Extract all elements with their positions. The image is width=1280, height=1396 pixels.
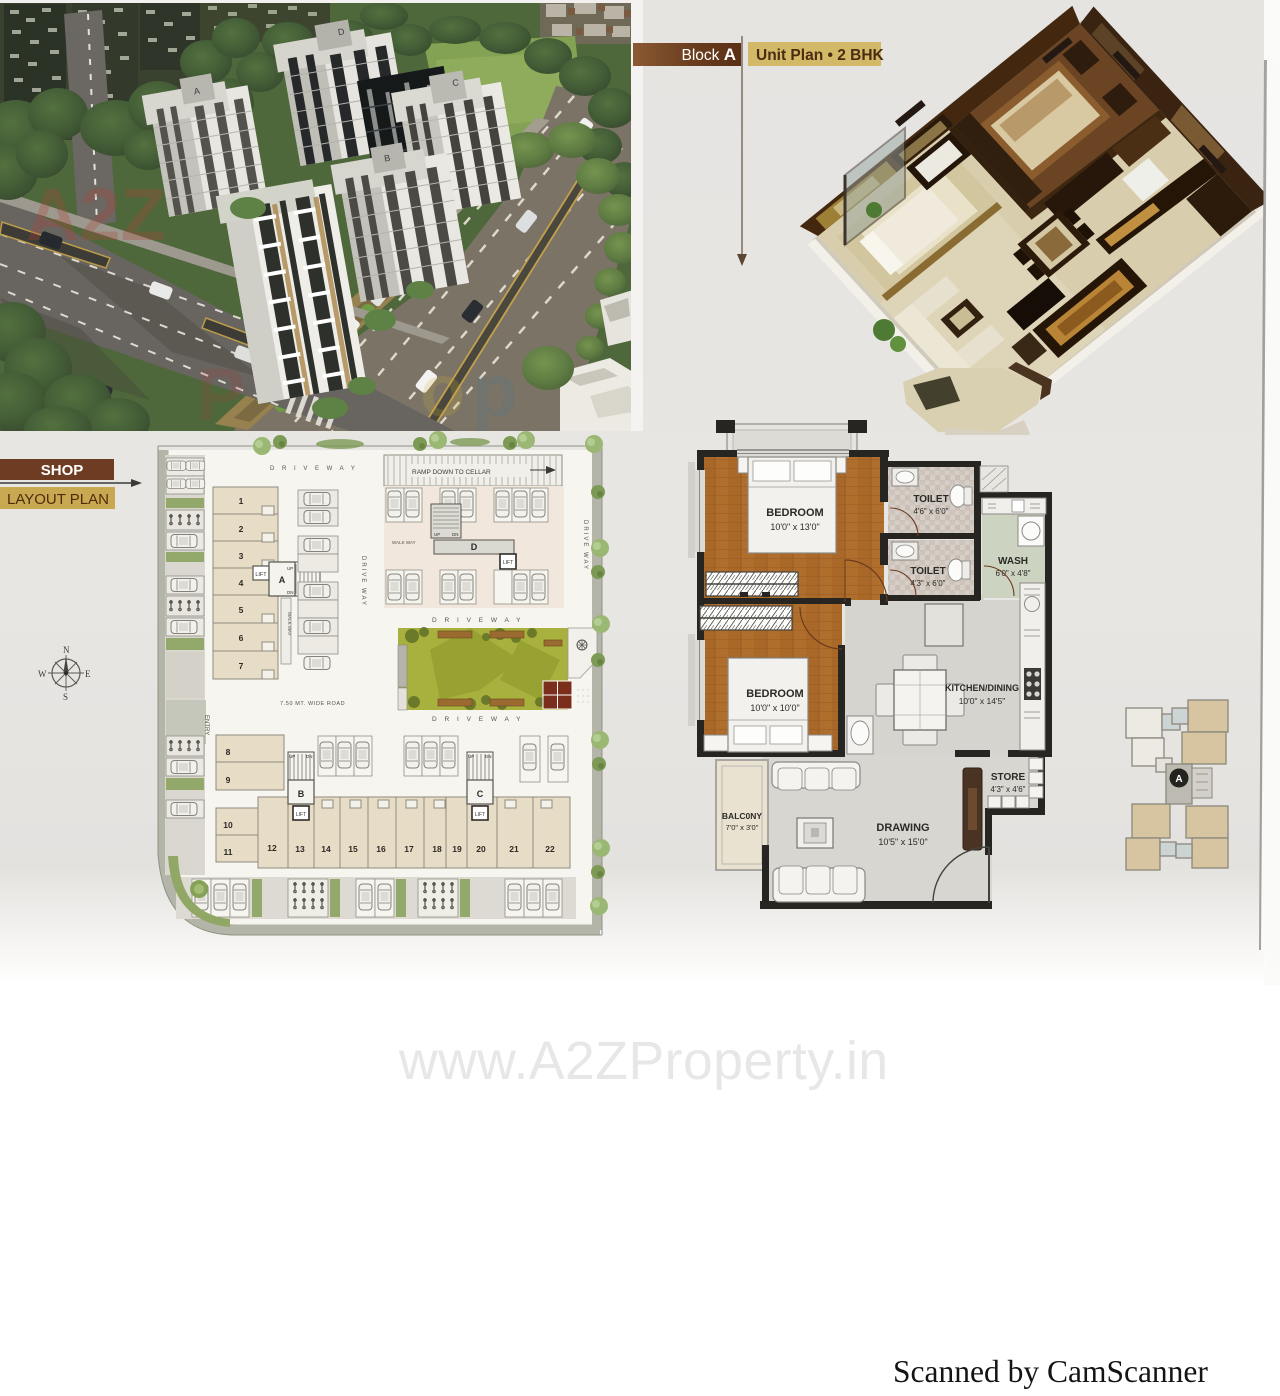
svg-text:C: C xyxy=(477,789,484,799)
svg-text:15: 15 xyxy=(348,844,358,854)
svg-text:20: 20 xyxy=(476,844,486,854)
svg-text:P: P xyxy=(196,353,245,431)
svg-text:7'0" x 3'0": 7'0" x 3'0" xyxy=(726,823,759,832)
svg-text:WALK WAY: WALK WAY xyxy=(392,540,416,545)
svg-text:17: 17 xyxy=(404,844,414,854)
svg-text:1: 1 xyxy=(239,496,244,506)
svg-text:W: W xyxy=(38,669,47,679)
svg-text:10'0" x 10'0": 10'0" x 10'0" xyxy=(750,703,799,713)
svg-text:D R I V E W A Y: D R I V E W A Y xyxy=(270,466,358,472)
svg-text:7: 7 xyxy=(239,661,244,671)
svg-text:STORE: STORE xyxy=(991,772,1026,783)
svg-text:A: A xyxy=(1175,774,1182,785)
svg-text:DN: DN xyxy=(452,532,459,537)
svg-text:DRIVE WAY: DRIVE WAY xyxy=(360,556,366,607)
svg-text:DN: DN xyxy=(485,754,492,759)
svg-text:LIFT: LIFT xyxy=(475,812,485,818)
svg-text:8: 8 xyxy=(226,747,231,757)
svg-text:WASH: WASH xyxy=(998,556,1028,567)
svg-text:10: 10 xyxy=(223,820,233,830)
svg-text:RAMP DOWN TO CELLAR: RAMP DOWN TO CELLAR xyxy=(412,469,491,476)
svg-text:16: 16 xyxy=(376,844,386,854)
svg-text:UP: UP xyxy=(289,754,295,759)
svg-text:TOILET: TOILET xyxy=(913,494,948,505)
svg-text:A: A xyxy=(279,575,286,585)
svg-text:E: E xyxy=(85,669,91,679)
svg-text:A2Z: A2Z xyxy=(26,173,166,256)
svg-text:D R I V E W A Y: D R I V E W A Y xyxy=(432,617,523,624)
svg-text:4'3" x 6'0": 4'3" x 6'0" xyxy=(911,579,946,588)
svg-text:7.50 MT. WIDE ROAD: 7.50 MT. WIDE ROAD xyxy=(280,701,345,707)
svg-text:4: 4 xyxy=(239,578,244,588)
svg-text:UP: UP xyxy=(468,754,474,759)
svg-text:12: 12 xyxy=(267,843,277,853)
svg-text:BEDROOM: BEDROOM xyxy=(766,507,823,519)
svg-text:DRAWING: DRAWING xyxy=(876,822,929,834)
svg-text:18: 18 xyxy=(432,844,442,854)
svg-text:o: o xyxy=(420,349,465,431)
svg-text:4'3" x 4'6": 4'3" x 4'6" xyxy=(991,785,1026,794)
svg-text:UP: UP xyxy=(287,566,293,571)
svg-text:3: 3 xyxy=(239,551,244,561)
svg-text:S: S xyxy=(63,692,68,702)
svg-text:21: 21 xyxy=(509,844,519,854)
svg-text:N: N xyxy=(63,645,70,655)
svg-text:10'0" x 13'0": 10'0" x 13'0" xyxy=(770,522,819,532)
svg-text:D: D xyxy=(471,542,478,552)
svg-text:10'0" x 14'5": 10'0" x 14'5" xyxy=(959,696,1006,706)
svg-text:9: 9 xyxy=(226,775,231,785)
svg-text:D R I V E W A Y: D R I V E W A Y xyxy=(432,716,523,723)
svg-text:p: p xyxy=(472,349,517,431)
svg-text:22: 22 xyxy=(545,844,555,854)
svg-text:SHOP: SHOP xyxy=(41,462,84,479)
svg-text:DN: DN xyxy=(287,590,294,595)
svg-text:6'0" x 4'8": 6'0" x 4'8" xyxy=(996,569,1031,578)
svg-text:2: 2 xyxy=(239,524,244,534)
svg-text:BEDROOM: BEDROOM xyxy=(746,688,803,700)
svg-text:LAYOUT PLAN: LAYOUT PLAN xyxy=(7,491,109,508)
svg-text:4'6" x 6'0": 4'6" x 6'0" xyxy=(914,507,949,516)
svg-text:Block A: Block A xyxy=(682,45,737,64)
svg-text:ENTRY: ENTRY xyxy=(203,715,209,735)
svg-text:BALC0NY: BALC0NY xyxy=(722,811,762,821)
svg-text:11: 11 xyxy=(224,847,233,857)
svg-text:LIFT: LIFT xyxy=(503,560,513,566)
svg-text:14: 14 xyxy=(321,844,331,854)
svg-text:10'5" x 15'0": 10'5" x 15'0" xyxy=(878,837,927,847)
svg-text:LIFT: LIFT xyxy=(296,812,306,818)
svg-text:DRIVE WAY: DRIVE WAY xyxy=(582,520,588,571)
svg-text:UP: UP xyxy=(434,532,440,537)
svg-text:13: 13 xyxy=(295,844,305,854)
svg-text:19: 19 xyxy=(452,844,462,854)
svg-text:WALK WAY: WALK WAY xyxy=(287,612,292,636)
svg-text:Unit Plan • 2 BHK: Unit Plan • 2 BHK xyxy=(756,47,885,64)
svg-text:LIFT: LIFT xyxy=(255,572,267,578)
svg-text:5: 5 xyxy=(239,605,244,615)
svg-text:KITCHEN/DINING: KITCHEN/DINING xyxy=(945,683,1019,693)
svg-text:DN: DN xyxy=(306,754,313,759)
svg-text:6: 6 xyxy=(239,633,244,643)
svg-text:TOILET: TOILET xyxy=(910,566,945,577)
svg-text:B: B xyxy=(298,789,305,799)
